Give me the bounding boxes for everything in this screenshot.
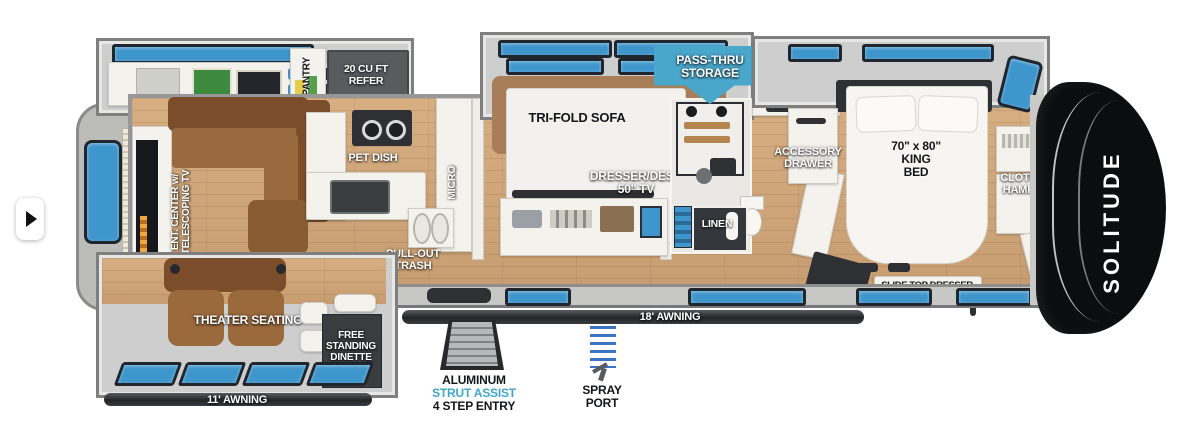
burner-left	[362, 120, 382, 140]
linen-towel-1	[726, 212, 738, 240]
desk-outlets	[550, 210, 592, 228]
wall-left-middle-room	[472, 98, 484, 260]
bottom-window-3	[856, 288, 932, 306]
shower-head-1	[686, 106, 697, 117]
dinette-chair-3	[334, 294, 376, 312]
entry-steps	[446, 322, 498, 366]
front-cap-trimline-right	[1078, 100, 1160, 314]
bottom-window-2	[688, 288, 806, 306]
living-slide-window	[112, 44, 314, 64]
trash-bin-1	[413, 213, 431, 244]
bedroom-window-1	[788, 44, 842, 62]
pillow-right	[917, 95, 978, 133]
spray-port-hose	[590, 326, 616, 368]
linen-closet	[692, 206, 748, 252]
sectional-back-top	[168, 97, 308, 131]
bottom-window-1	[505, 288, 571, 306]
carousel-next-button[interactable]	[16, 198, 44, 240]
bottom-window-4	[956, 288, 1032, 306]
theater-seat-left	[168, 290, 224, 346]
tv-50in	[512, 190, 654, 198]
trash-bin-2	[431, 213, 449, 244]
dresser-comb-1	[856, 263, 878, 272]
bath-monitor	[710, 158, 736, 176]
bath-stool	[696, 168, 712, 184]
theater-back	[164, 258, 286, 292]
spray-port-label: SPRAY PORT	[562, 384, 642, 410]
bedroom-window-2	[862, 44, 994, 62]
sectional-chaise	[248, 200, 308, 254]
kitchen-sink	[330, 180, 390, 214]
theater-window-3	[242, 362, 311, 386]
entry-label-line3: 4 STEP ENTRY	[414, 400, 534, 413]
floorplan-canvas: PANTRY 20 CU FT REFER ENT. CENTER w/ TEL…	[0, 0, 1200, 439]
theater-cupholder-left	[170, 264, 180, 274]
theater-seat-right	[228, 290, 284, 346]
shower-head-2	[716, 106, 727, 117]
next-arrow-icon	[26, 211, 37, 227]
theater-window-2	[178, 362, 247, 386]
towel-bar-1	[684, 122, 730, 129]
accessory-drawer-slot	[796, 118, 826, 124]
dresser-comb-2	[888, 263, 910, 272]
theater-cupholder-right	[276, 264, 286, 274]
desk-screen	[640, 206, 662, 238]
rear-window	[84, 140, 122, 244]
entry-label-line2: STRUT ASSIST	[414, 387, 534, 400]
desk-wood-panel	[600, 206, 634, 232]
sofa-window-3	[506, 58, 604, 75]
towel-bar-2	[684, 136, 730, 143]
entry-mat	[427, 288, 491, 303]
pillow-left	[855, 95, 916, 133]
desk-controllers	[512, 210, 542, 228]
awning-rear-bar	[104, 393, 372, 406]
burner-right	[386, 120, 406, 140]
entry-label-line1: ALUMINUM	[414, 374, 534, 387]
bath-towels-blue	[674, 206, 692, 248]
theater-window-1	[114, 362, 183, 386]
theater-window-4	[306, 362, 375, 386]
sofa-window-1	[498, 40, 612, 58]
